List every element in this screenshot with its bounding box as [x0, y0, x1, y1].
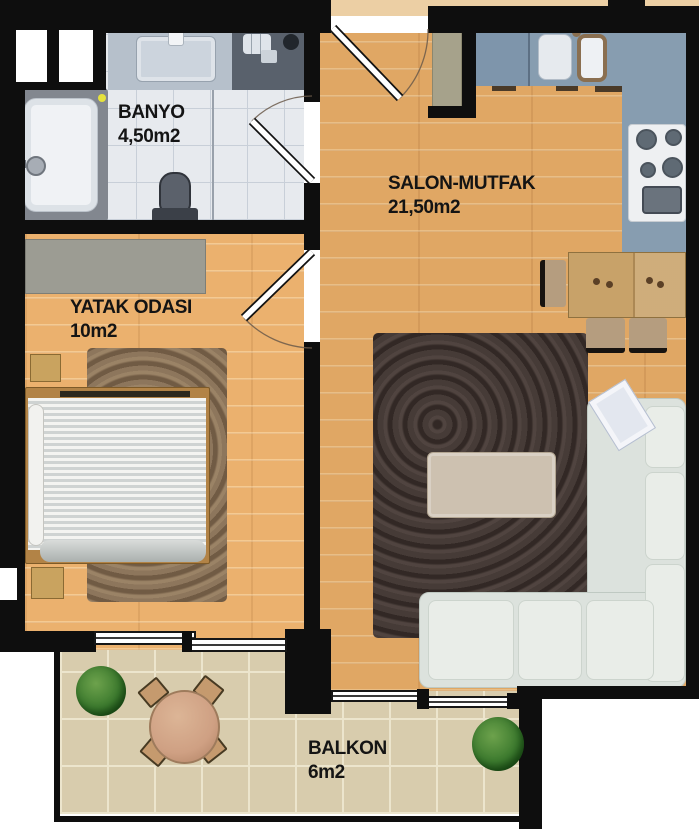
bath-window-pane	[16, 30, 47, 82]
bathroom-door-opening	[304, 102, 320, 183]
table-knob	[593, 278, 600, 285]
plant	[76, 666, 126, 716]
room-label-banyo: BANYO 4,50m2	[118, 101, 185, 149]
wall-bath-salon-b	[304, 182, 320, 251]
wall-left	[0, 33, 25, 652]
wall-corner-chunk	[285, 629, 331, 714]
wall-entry-stub-bottom	[428, 106, 476, 118]
room-name: BANYO	[118, 101, 185, 125]
bedroom-door-opening	[304, 250, 320, 342]
coffee-table	[427, 452, 556, 518]
room-name: SALON-MUTFAK	[388, 172, 535, 196]
room-label-balkon: BALKON 6m2	[308, 737, 387, 785]
dining-chair-bottom	[586, 318, 625, 353]
fridge	[468, 28, 530, 86]
room-name: YATAK ODASI	[70, 296, 192, 320]
sofa-cushion	[586, 600, 654, 680]
washer-detergent-box	[261, 50, 277, 63]
kitchen-sink-basin	[577, 34, 607, 82]
table-knob	[606, 281, 613, 288]
sofa-cushion	[518, 600, 582, 680]
stove-burner	[640, 162, 656, 178]
wall-right	[686, 6, 699, 699]
wall-bath-bottom	[25, 220, 320, 234]
room-label-yatak-odasi: YATAK ODASI 10m2	[70, 296, 192, 344]
wall-bath-salon-a	[304, 33, 320, 103]
room-area: 6m2	[308, 761, 387, 785]
bed-duvet	[28, 398, 206, 550]
nightstand-top	[30, 354, 61, 382]
stove-burner	[636, 129, 657, 150]
room-name: BALKON	[308, 737, 387, 761]
balcony-table	[149, 690, 220, 764]
yellow-dot	[98, 94, 106, 102]
table-knob	[646, 277, 653, 284]
bedroom-window-rail	[94, 631, 196, 645]
counter-handle	[492, 86, 516, 91]
wardrobe	[25, 239, 206, 294]
balcony-railing-left	[54, 650, 60, 822]
entry-door-threshold	[331, 16, 428, 33]
stove-burner	[662, 157, 683, 178]
shower-head	[26, 156, 46, 176]
balcony-door-tick	[507, 693, 519, 709]
wall-top-notch	[608, 0, 645, 10]
plant	[472, 717, 524, 771]
wall-salon-bottom	[517, 686, 699, 699]
bed-headboard-slot	[60, 391, 190, 397]
kitchen-sink-drainboard	[538, 34, 572, 80]
dining-chair-left	[540, 260, 566, 307]
dining-table	[568, 252, 686, 318]
bed-bolster-pillow	[28, 404, 44, 546]
wall-entry-stub-vertical	[462, 25, 476, 118]
room-area: 10m2	[70, 320, 192, 344]
stove-burner	[665, 129, 682, 146]
nightstand-bottom	[31, 567, 64, 599]
floor-plan: BANYO 4,50m2 SALON-MUTFAK 21,50m2 YATAK …	[0, 0, 699, 837]
balcony-railing-bottom	[54, 816, 519, 822]
bedroom-window-tick	[182, 631, 192, 652]
table-knob	[657, 281, 664, 288]
balcony-door-rail	[419, 696, 519, 708]
dining-chair-bottom	[629, 318, 667, 353]
sofa-cushion	[645, 472, 685, 560]
entry-cabinet	[432, 25, 462, 107]
sofa-cushion	[645, 406, 685, 468]
bedroom-window-rail	[184, 638, 287, 652]
room-area: 4,50m2	[118, 125, 185, 149]
balcony-door-rail	[331, 690, 429, 702]
washer-drum-circle	[283, 34, 299, 50]
balcony-door-tick	[417, 689, 429, 709]
bathtub	[24, 98, 98, 212]
room-area: 21,50m2	[388, 196, 535, 220]
oven-door	[642, 186, 682, 214]
bath-window-pane	[59, 30, 93, 82]
bed-blanket-roll	[40, 540, 206, 562]
wall-balcony-right	[519, 686, 542, 829]
counter-handle	[556, 86, 578, 91]
room-label-salon-mutfak: SALON-MUTFAK 21,50m2	[388, 172, 535, 220]
wall-bath-salon-c	[304, 341, 320, 629]
left-wall-window	[0, 568, 17, 600]
sofa-cushion	[428, 600, 514, 680]
